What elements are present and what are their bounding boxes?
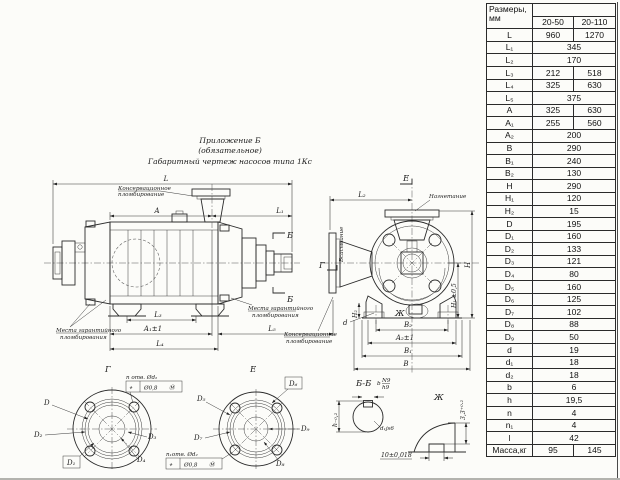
gdt-value: Ø0,8 xyxy=(183,462,198,469)
table-row: L9601270 xyxy=(487,29,616,42)
dim-label: d₁ xyxy=(487,356,533,369)
dim-D1: D₁ xyxy=(66,459,76,467)
title-line1: Приложение Б xyxy=(198,136,261,145)
flange-g-holes-note: n отв. Ød₂ ⌖ Ø0,8 Ⓜ xyxy=(126,374,182,403)
dim-label: H₂ xyxy=(487,205,533,218)
dim-B1: B₁ xyxy=(403,347,412,355)
dim-value-shared: 50 xyxy=(533,331,616,344)
dim-value-shared: 80 xyxy=(533,268,616,281)
dim-D3: D₃ xyxy=(147,433,157,441)
dimensions-table-header: Размеры, мм 20-50 20-110 xyxy=(487,4,616,29)
dim-A2: A₂±1 xyxy=(395,334,414,342)
dim-label: D₇ xyxy=(487,306,533,319)
dim-label: D₄ xyxy=(487,268,533,281)
dim-label: d₂ xyxy=(487,369,533,382)
dim-value-shared: 195 xyxy=(533,218,616,231)
gdt-modifier: Ⓜ xyxy=(169,385,176,392)
dim-value: 630 xyxy=(574,104,616,117)
table-row: L₃212518 xyxy=(487,66,616,79)
dim-label: D₂ xyxy=(487,243,533,256)
section-bb-title: Б-Б xyxy=(355,379,372,389)
key-fit-den: h9 xyxy=(382,385,390,391)
dim-label: L₃ xyxy=(487,66,533,79)
dim-D: D xyxy=(43,399,50,407)
title-line2: (обязательное) xyxy=(198,146,262,155)
dim-label: l xyxy=(487,432,533,445)
table-header-spacer xyxy=(533,4,616,17)
section-bb: Б-Б b N9 h9 h₋₀,₂ d₁js6 xyxy=(332,378,394,432)
dimensions-table-body: L9601270L₁345L₂170L₃212518L₄325630L₅375A… xyxy=(487,29,616,457)
table-row: L₄325630 xyxy=(487,79,616,92)
pump-side-view: Б Б L A L₁ L₃ A₁±1 xyxy=(44,175,333,351)
dim-value: 560 xyxy=(574,117,616,130)
dim-value-shared: 125 xyxy=(533,293,616,306)
flange-view-g: Г D D₂ D₃ D₄ D₁ n отв. Ød₂ ⌖ Ø0,8 Ⓜ xyxy=(33,365,182,471)
table-row: H290 xyxy=(487,180,616,193)
dim-value-shared: 19 xyxy=(533,344,616,357)
dim-slot: 10±0,018 xyxy=(381,452,412,459)
key-fit-num: N9 xyxy=(381,378,391,384)
zh-callout-label: Ж xyxy=(394,309,405,319)
flange-e-holes-note: n₁отв. Ød₂ ⌖ Ø0,8 Ⓜ xyxy=(166,451,233,469)
dim-D4: D₄ xyxy=(136,456,146,464)
dim-label: n xyxy=(487,407,533,420)
view-g-title: Г xyxy=(104,365,111,375)
table-row: n4 xyxy=(487,407,616,420)
dim-value-shared: 160 xyxy=(533,281,616,294)
table-row: L₅375 xyxy=(487,92,616,105)
holes-note: n₁отв. Ød₂ xyxy=(166,451,198,458)
dim-label: h xyxy=(487,394,533,407)
table-row: L₂170 xyxy=(487,54,616,67)
dim-H: H xyxy=(464,261,472,269)
header-line2: мм xyxy=(489,13,501,23)
dim-label: B xyxy=(487,142,533,155)
dim-value-shared: 120 xyxy=(533,192,616,205)
table-row: A₁255560 xyxy=(487,117,616,130)
gdt-position-symbol: ⌖ xyxy=(169,463,173,469)
dim-value-shared: 102 xyxy=(533,306,616,319)
key-width: b xyxy=(377,381,381,387)
front-view-dimensions: L₂ H H₁ ±0,5 H₂ d B₂ A₂±1 B₁ xyxy=(330,191,475,371)
dim-label: L₅ xyxy=(487,92,533,105)
note-line: пломбирование xyxy=(286,338,333,345)
dimensions-table: Размеры, мм 20-50 20-110 L9601270L₁345L₂… xyxy=(486,3,616,457)
dim-label: H₁ xyxy=(487,192,533,205)
dim-H2: H₂ xyxy=(352,310,359,319)
dim-value-shared: 15 xyxy=(533,205,616,218)
dim-label: n₁ xyxy=(487,419,533,432)
dim-label: A₁ xyxy=(487,117,533,130)
dim-value-shared: 6 xyxy=(533,381,616,394)
table-row: L₁345 xyxy=(487,41,616,54)
view-g-mark: Г xyxy=(318,261,337,271)
dim-value-shared: 240 xyxy=(533,155,616,168)
dim-L: L xyxy=(163,175,169,183)
dim-zh-depth: 3,3⁺⁰·² xyxy=(460,399,467,420)
dim-B2: B₂ xyxy=(403,321,412,329)
table-header-model-1: 20-50 xyxy=(533,16,574,29)
table-row: d19 xyxy=(487,344,616,357)
dim-value: 95 xyxy=(533,444,574,457)
dim-value-shared: 18 xyxy=(533,369,616,382)
dim-L2: L₂ xyxy=(357,191,366,199)
dim-L4: L₄ xyxy=(155,340,164,348)
table-row: D₈88 xyxy=(487,318,616,331)
table-row: d₂18 xyxy=(487,369,616,382)
dim-value-shared: 290 xyxy=(533,180,616,193)
dim-h: h₋₀,₂ xyxy=(332,412,339,427)
zh-callout: Ж xyxy=(394,304,428,319)
section-b-label-top: Б xyxy=(286,231,294,241)
dim-label: L₁ xyxy=(487,41,533,54)
dim-value-shared: 200 xyxy=(533,129,616,142)
dim-label: D₃ xyxy=(487,255,533,268)
gdt-position-symbol: ⌖ xyxy=(129,386,133,392)
table-row: D₉50 xyxy=(487,331,616,344)
title-line3: Габаритный чертеж насосов типа 1Кс xyxy=(147,157,313,166)
section-b-label-bottom: Б xyxy=(286,295,294,305)
dim-value-shared: 19,5 xyxy=(533,394,616,407)
dim-value: 145 xyxy=(574,444,616,457)
pump-front-view: Ж Е Г Нагнетание Всасывание L₂ H H₁ ±0,5 xyxy=(283,174,480,374)
dim-label: D₉ xyxy=(487,331,533,344)
dim-value: 212 xyxy=(533,66,574,79)
dim-value-shared: 375 xyxy=(533,92,616,105)
table-row: n₁4 xyxy=(487,419,616,432)
note-line: пломбирования xyxy=(252,312,299,319)
dim-D7: D₇ xyxy=(193,434,203,442)
flange-view-e: Е D₅ D₆ D₇ D₉ D₈ n₁отв. Ød₂ ⌖ Ø0,8 Ⓜ xyxy=(166,365,310,469)
dim-d: d xyxy=(343,319,348,327)
engineering-drawing: Приложение Б (обязательное) Габаритный ч… xyxy=(0,0,486,480)
holes-note: n отв. Ød₂ xyxy=(126,374,158,381)
dim-A: A xyxy=(153,207,159,215)
dim-D2: D₂ xyxy=(33,431,43,439)
dim-value-shared: 4 xyxy=(533,407,616,420)
table-row: D₅160 xyxy=(487,281,616,294)
discharge-label: Нагнетание xyxy=(428,194,467,200)
shaft-fit: d₁js6 xyxy=(380,426,394,432)
dim-D1-boxed: D₁ xyxy=(63,443,94,468)
dim-value-shared: 121 xyxy=(533,255,616,268)
dim-label: A xyxy=(487,104,533,117)
dim-L1: L₁ xyxy=(275,207,284,215)
dim-D9: D₉ xyxy=(300,425,310,433)
dim-label: Масса,кг xyxy=(487,444,533,457)
dim-A1: A₁±1 xyxy=(143,325,162,333)
dim-label: D xyxy=(487,218,533,231)
dim-D5: D₅ xyxy=(196,395,206,403)
table-row: b6 xyxy=(487,381,616,394)
table-row: D195 xyxy=(487,218,616,231)
dim-value-shared: 18 xyxy=(533,356,616,369)
table-row: D₆125 xyxy=(487,293,616,306)
dim-label: H xyxy=(487,180,533,193)
note-line: пломбирования xyxy=(60,334,107,341)
warranty-seal-note-right: Места гарантийного пломбирования xyxy=(231,298,314,319)
table-row: A325630 xyxy=(487,104,616,117)
dim-label: D₅ xyxy=(487,281,533,294)
dim-value-shared: 290 xyxy=(533,142,616,155)
dim-value-shared: 4 xyxy=(533,419,616,432)
dim-value-shared: 130 xyxy=(533,167,616,180)
dim-D8: D₈ xyxy=(275,460,285,468)
dim-H1: H₁ ±0,5 xyxy=(451,283,458,309)
dim-value: 630 xyxy=(574,79,616,92)
table-row: d₁18 xyxy=(487,356,616,369)
scanned-drawing-page: Приложение Б (обязательное) Габаритный ч… xyxy=(0,0,620,480)
table-header-model-2: 20-110 xyxy=(574,16,616,29)
drawing-title: Приложение Б (обязательное) Габаритный ч… xyxy=(147,136,313,166)
dim-value-shared: 133 xyxy=(533,243,616,256)
dim-label: L₂ xyxy=(487,54,533,67)
dim-label: B₂ xyxy=(487,167,533,180)
dim-label: D₆ xyxy=(487,293,533,306)
dim-value-shared: 160 xyxy=(533,230,616,243)
dim-B: B xyxy=(402,360,408,368)
dim-value: 255 xyxy=(533,117,574,130)
dim-L3: L₃ xyxy=(153,311,162,319)
dim-value-shared: 170 xyxy=(533,54,616,67)
table-header-units: Размеры, мм xyxy=(487,4,533,29)
preservation-seal-note-top: Консервационное пломбирование xyxy=(117,186,193,198)
dim-label: d xyxy=(487,344,533,357)
table-row: B₁240 xyxy=(487,155,616,168)
dim-value: 325 xyxy=(533,79,574,92)
table-row: Масса,кг95145 xyxy=(487,444,616,457)
view-g-letter: Г xyxy=(318,261,325,271)
table-row: B290 xyxy=(487,142,616,155)
dim-D6-boxed: D₆ xyxy=(272,377,302,403)
table-row: A₂200 xyxy=(487,129,616,142)
view-e-mark: Е xyxy=(400,174,412,184)
dim-value-shared: 42 xyxy=(533,432,616,445)
dim-D6: D₆ xyxy=(288,380,298,388)
note-line: пломбирование xyxy=(118,191,165,198)
table-row: H₂15 xyxy=(487,205,616,218)
table-row: D₂133 xyxy=(487,243,616,256)
detail-zh-title: Ж xyxy=(433,393,444,403)
dim-label: b xyxy=(487,381,533,394)
table-row: D₄80 xyxy=(487,268,616,281)
dim-label: L₄ xyxy=(487,79,533,92)
table-row: B₂130 xyxy=(487,167,616,180)
gdt-modifier: Ⓜ xyxy=(209,462,216,469)
view-e-letter: Е xyxy=(402,174,410,184)
view-e-title: Е xyxy=(249,365,257,375)
dim-value: 1270 xyxy=(574,29,616,42)
page-edge-line xyxy=(617,2,618,478)
table-row: h19,5 xyxy=(487,394,616,407)
gdt-value: Ø0,8 xyxy=(143,385,158,392)
dim-L5: L₅ xyxy=(267,325,276,333)
table-row: D₁160 xyxy=(487,230,616,243)
warranty-seal-note-left: Места гарантийного пломбирования xyxy=(55,300,122,341)
dim-label: B₁ xyxy=(487,155,533,168)
table-row: H₁120 xyxy=(487,192,616,205)
dim-value-shared: 88 xyxy=(533,318,616,331)
dim-value-shared: 345 xyxy=(533,41,616,54)
dim-label: D₁ xyxy=(487,230,533,243)
dim-value: 518 xyxy=(574,66,616,79)
suction-label: Всасывание xyxy=(339,226,345,263)
dim-value: 325 xyxy=(533,104,574,117)
section-b-marks: Б Б xyxy=(273,231,294,305)
dim-value: 960 xyxy=(533,29,574,42)
dim-label: D₈ xyxy=(487,318,533,331)
table-row: l42 xyxy=(487,432,616,445)
table-row: D₇102 xyxy=(487,306,616,319)
table-row: D₃121 xyxy=(487,255,616,268)
dim-label: L xyxy=(487,29,533,42)
dim-label: A₂ xyxy=(487,129,533,142)
